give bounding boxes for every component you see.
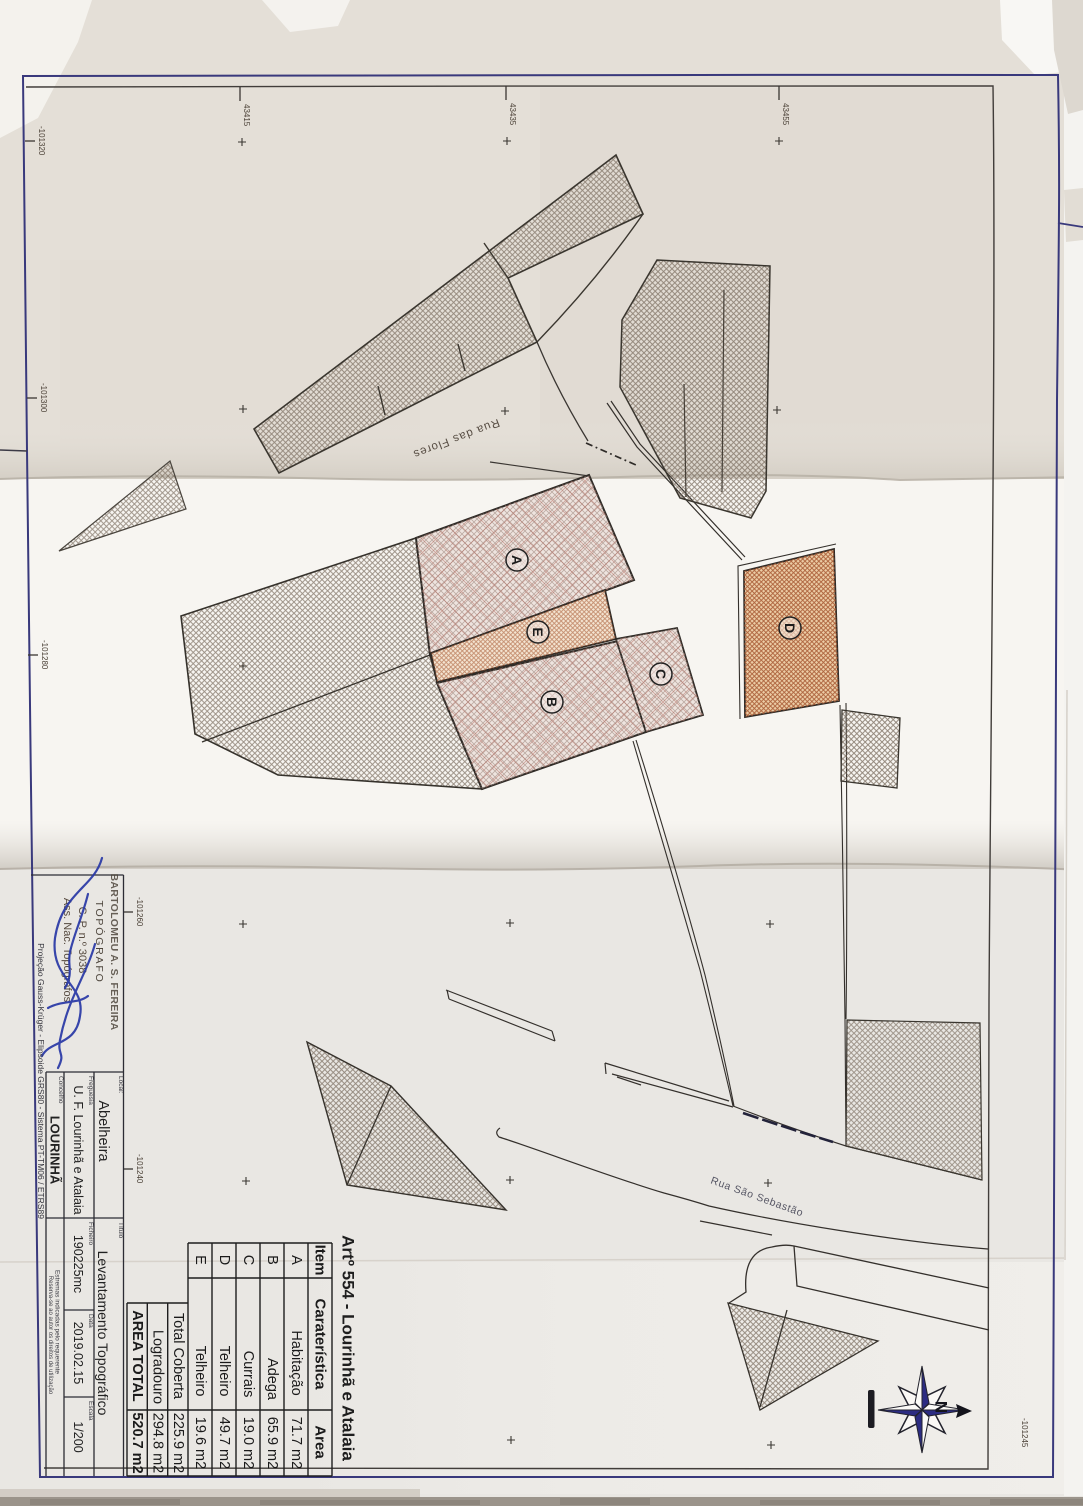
svg-text:B: B: [544, 697, 560, 707]
svg-text:Artº 554 - Lourinhã e Atalaia: Artº 554 - Lourinhã e Atalaia: [339, 1235, 358, 1461]
svg-text:Escala: Escala: [87, 1401, 94, 1421]
svg-text:19.0 m2: 19.0 m2: [240, 1417, 256, 1469]
svg-text:-101280: -101280: [40, 640, 49, 670]
svg-text:Ficheiro: Ficheiro: [87, 1222, 94, 1246]
svg-text:A: A: [288, 1255, 304, 1265]
svg-text:1/200: 1/200: [71, 1421, 85, 1452]
svg-text:Telheiro: Telheiro: [192, 1346, 208, 1397]
svg-text:294.8 m2: 294.8 m2: [150, 1413, 166, 1473]
svg-text:19.6 m2: 19.6 m2: [192, 1417, 208, 1469]
svg-text:Adega: Adega: [264, 1358, 280, 1401]
svg-text:D: D: [216, 1255, 232, 1265]
svg-text:Telheiro: Telheiro: [216, 1346, 232, 1397]
svg-text:-101320: -101320: [37, 126, 46, 156]
svg-text:-101240: -101240: [135, 1154, 144, 1184]
svg-text:Concelho: Concelho: [57, 1076, 64, 1104]
svg-text:B: B: [264, 1255, 280, 1265]
svg-text:520.7 m2: 520.7 m2: [129, 1412, 145, 1473]
svg-text:Freguesia: Freguesia: [87, 1076, 94, 1105]
svg-text:E: E: [192, 1255, 208, 1265]
svg-text:Habitação: Habitação: [288, 1330, 304, 1395]
svg-text:49.7 m2: 49.7 m2: [216, 1417, 232, 1469]
svg-text:65.9 m2: 65.9 m2: [264, 1417, 280, 1469]
svg-text:Total Coberta: Total Coberta: [170, 1313, 186, 1400]
svg-text:U. F. Lourinhã e Atalaia: U. F. Lourinhã e Atalaia: [71, 1085, 85, 1214]
svg-text:Estremas indicadas pelo requer: Estremas indicadas pelo requerente: [54, 1270, 61, 1374]
svg-text:Currais: Currais: [240, 1351, 256, 1398]
svg-text:-101300: -101300: [39, 383, 48, 413]
svg-text:E: E: [530, 627, 546, 636]
svg-text:190225mc: 190225mc: [71, 1235, 85, 1293]
svg-text:43415: 43415: [242, 104, 251, 127]
svg-text:BARTOLOMEU A. S. FEREIRA: BARTOLOMEU A. S. FEREIRA: [108, 873, 120, 1030]
svg-text:D: D: [782, 623, 798, 633]
svg-text:Data: Data: [87, 1314, 94, 1328]
svg-text:Reserva-se ao autor os direito: Reserva-se ao autor os direitos de utili…: [47, 1276, 53, 1395]
svg-text:LOURINHÃ: LOURINHÃ: [48, 1116, 63, 1185]
svg-text:43435: 43435: [508, 103, 517, 126]
svg-text:Projeção Gauss-Krüger - Elipso: Projeção Gauss-Krüger - Elipsoide GRS80 …: [36, 943, 46, 1219]
svg-text:-101260: -101260: [135, 897, 144, 927]
svg-text:Levantamento Topográfico: Levantamento Topográfico: [95, 1251, 111, 1416]
svg-text:Area: Area: [312, 1425, 329, 1459]
svg-text:-101245: -101245: [1020, 1418, 1029, 1448]
svg-text:A: A: [509, 555, 525, 565]
svg-text:Título: Título: [117, 1222, 124, 1239]
svg-text:43455: 43455: [781, 103, 790, 126]
svg-text:Logradouro: Logradouro: [150, 1330, 166, 1404]
svg-text:2019.02.15: 2019.02.15: [71, 1322, 85, 1385]
svg-text:225.9 m2: 225.9 m2: [170, 1413, 186, 1473]
svg-text:C: C: [240, 1255, 256, 1265]
svg-text:Caraterística: Caraterística: [312, 1299, 329, 1391]
svg-text:N: N: [932, 1401, 951, 1413]
svg-text:71.7 m2: 71.7 m2: [288, 1417, 304, 1469]
svg-text:C: C: [653, 669, 669, 679]
svg-text:TOPÓGRAFO: TOPÓGRAFO: [93, 900, 106, 983]
svg-text:AREA TOTAL: AREA TOTAL: [129, 1310, 145, 1402]
svg-text:Abelheira: Abelheira: [95, 1100, 111, 1162]
svg-text:Local:: Local:: [117, 1076, 124, 1094]
svg-text:Item: Item: [312, 1245, 329, 1276]
